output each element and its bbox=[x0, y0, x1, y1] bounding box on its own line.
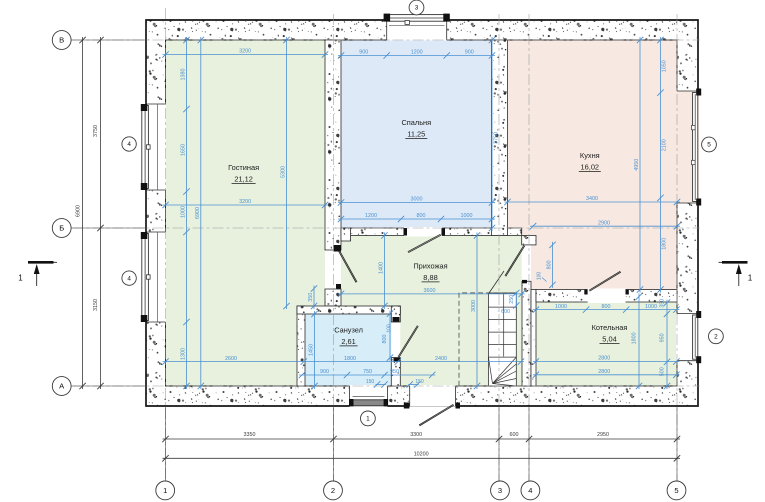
svg-text:1000: 1000 bbox=[181, 206, 187, 218]
svg-text:1400: 1400 bbox=[378, 262, 384, 274]
svg-text:8,88: 8,88 bbox=[423, 273, 437, 282]
svg-text:5: 5 bbox=[707, 142, 711, 149]
svg-text:1: 1 bbox=[748, 274, 753, 283]
svg-text:250: 250 bbox=[509, 295, 515, 304]
svg-text:750: 750 bbox=[363, 369, 372, 375]
svg-text:1800: 1800 bbox=[631, 332, 637, 344]
svg-text:100: 100 bbox=[537, 272, 543, 281]
svg-text:3200: 3200 bbox=[239, 199, 251, 205]
svg-text:Прихожая: Прихожая bbox=[413, 262, 447, 271]
svg-text:4: 4 bbox=[127, 141, 131, 148]
svg-text:3200: 3200 bbox=[239, 49, 251, 55]
svg-text:2100: 2100 bbox=[662, 139, 668, 151]
svg-text:Санузел: Санузел bbox=[334, 326, 363, 335]
svg-text:2: 2 bbox=[331, 486, 335, 495]
svg-text:1380: 1380 bbox=[181, 69, 187, 81]
svg-text:3350: 3350 bbox=[244, 432, 256, 438]
svg-text:900: 900 bbox=[320, 369, 329, 375]
svg-text:3: 3 bbox=[415, 5, 419, 12]
svg-text:950: 950 bbox=[390, 369, 399, 375]
svg-text:11,25: 11,25 bbox=[407, 130, 425, 139]
svg-text:2600: 2600 bbox=[225, 356, 237, 362]
svg-text:3600: 3600 bbox=[424, 288, 436, 294]
svg-text:1: 1 bbox=[366, 416, 370, 423]
svg-text:6900: 6900 bbox=[195, 207, 201, 219]
svg-text:2800: 2800 bbox=[598, 356, 610, 362]
svg-text:3400: 3400 bbox=[586, 196, 598, 202]
svg-text:2800: 2800 bbox=[598, 369, 610, 375]
svg-text:350: 350 bbox=[660, 299, 666, 308]
svg-text:1000: 1000 bbox=[645, 304, 657, 310]
svg-text:В: В bbox=[59, 36, 64, 45]
svg-text:900: 900 bbox=[465, 50, 474, 56]
svg-text:- 600: - 600 bbox=[498, 309, 510, 315]
svg-text:600: 600 bbox=[510, 432, 519, 438]
svg-text:150: 150 bbox=[415, 379, 424, 385]
svg-text:2,61: 2,61 bbox=[341, 337, 355, 346]
svg-text:100: 100 bbox=[387, 324, 393, 333]
svg-text:16,02: 16,02 bbox=[581, 163, 600, 172]
svg-text:3150: 3150 bbox=[93, 299, 99, 311]
svg-text:800: 800 bbox=[547, 260, 553, 269]
svg-text:5: 5 bbox=[674, 486, 678, 495]
svg-text:Б: Б bbox=[59, 224, 64, 233]
svg-text:1: 1 bbox=[163, 486, 167, 495]
svg-text:1000: 1000 bbox=[555, 304, 567, 310]
svg-text:10200: 10200 bbox=[414, 452, 429, 458]
svg-text:1000: 1000 bbox=[461, 213, 473, 219]
svg-text:Котельная: Котельная bbox=[592, 323, 628, 332]
svg-text:2900: 2900 bbox=[598, 220, 610, 226]
svg-text:4950: 4950 bbox=[634, 159, 640, 171]
svg-text:4: 4 bbox=[528, 486, 532, 495]
svg-text:6900: 6900 bbox=[75, 205, 81, 217]
svg-text:3000: 3000 bbox=[471, 300, 477, 312]
svg-text:800: 800 bbox=[602, 304, 611, 310]
svg-text:3: 3 bbox=[498, 486, 502, 495]
svg-text:2: 2 bbox=[714, 334, 718, 341]
svg-text:5300: 5300 bbox=[281, 166, 287, 178]
svg-text:1200: 1200 bbox=[365, 213, 377, 219]
svg-text:1300: 1300 bbox=[181, 348, 187, 360]
svg-text:3300: 3300 bbox=[410, 432, 422, 438]
svg-text:2400: 2400 bbox=[435, 356, 447, 362]
svg-text:1650: 1650 bbox=[181, 144, 187, 156]
svg-text:1800: 1800 bbox=[344, 356, 356, 362]
svg-text:3750: 3750 bbox=[494, 132, 500, 144]
svg-text:150: 150 bbox=[366, 379, 375, 385]
svg-text:500: 500 bbox=[660, 367, 666, 376]
svg-text:Кухня: Кухня bbox=[580, 151, 600, 160]
svg-text:350: 350 bbox=[308, 293, 314, 302]
svg-text:950: 950 bbox=[660, 333, 666, 342]
svg-text:21,12: 21,12 bbox=[234, 175, 253, 184]
svg-text:1200: 1200 bbox=[411, 50, 423, 56]
svg-text:1800: 1800 bbox=[662, 238, 668, 250]
svg-text:5,04: 5,04 bbox=[602, 335, 616, 344]
svg-text:4: 4 bbox=[127, 275, 131, 282]
svg-text:1: 1 bbox=[18, 274, 23, 283]
svg-text:Спальня: Спальня bbox=[401, 118, 431, 127]
svg-text:800: 800 bbox=[382, 335, 388, 344]
svg-text:Гостиная: Гостиная bbox=[228, 163, 259, 172]
svg-text:1450: 1450 bbox=[309, 344, 315, 356]
svg-text:1050: 1050 bbox=[662, 60, 668, 72]
svg-text:2950: 2950 bbox=[597, 432, 609, 438]
svg-text:900: 900 bbox=[359, 50, 368, 56]
svg-text:800: 800 bbox=[417, 213, 426, 219]
svg-text:3750: 3750 bbox=[93, 125, 99, 137]
svg-text:3000: 3000 bbox=[411, 197, 423, 203]
